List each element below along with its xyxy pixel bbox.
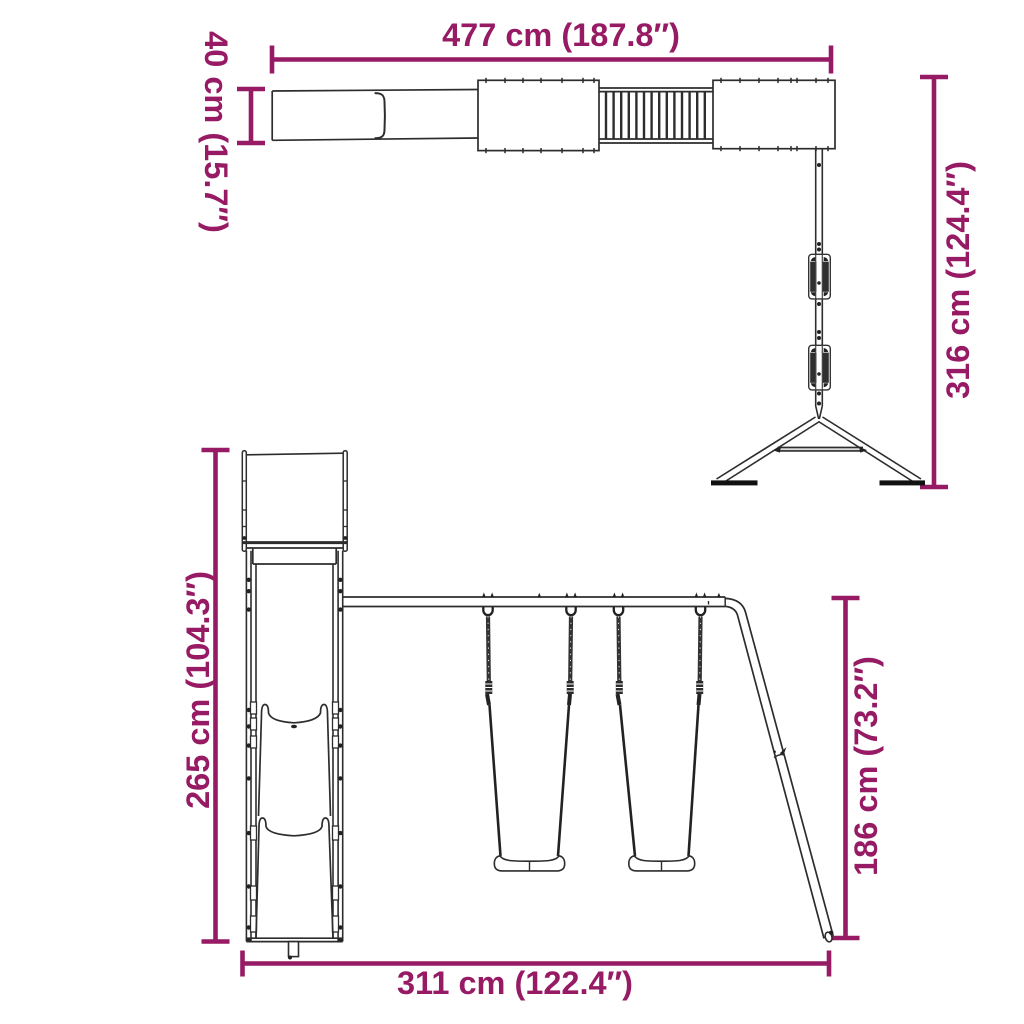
svg-text:477 cm (187.8″): 477 cm (187.8″): [442, 17, 680, 53]
svg-text:316 cm (124.4″): 316 cm (124.4″): [940, 161, 976, 399]
svg-text:311 cm (122.4″): 311 cm (122.4″): [397, 965, 633, 1001]
svg-text:40 cm (15.7″): 40 cm (15.7″): [198, 31, 234, 233]
svg-text:265 cm (104.3″): 265 cm (104.3″): [180, 571, 216, 809]
svg-text:186 cm (73.2″): 186 cm (73.2″): [848, 656, 884, 876]
